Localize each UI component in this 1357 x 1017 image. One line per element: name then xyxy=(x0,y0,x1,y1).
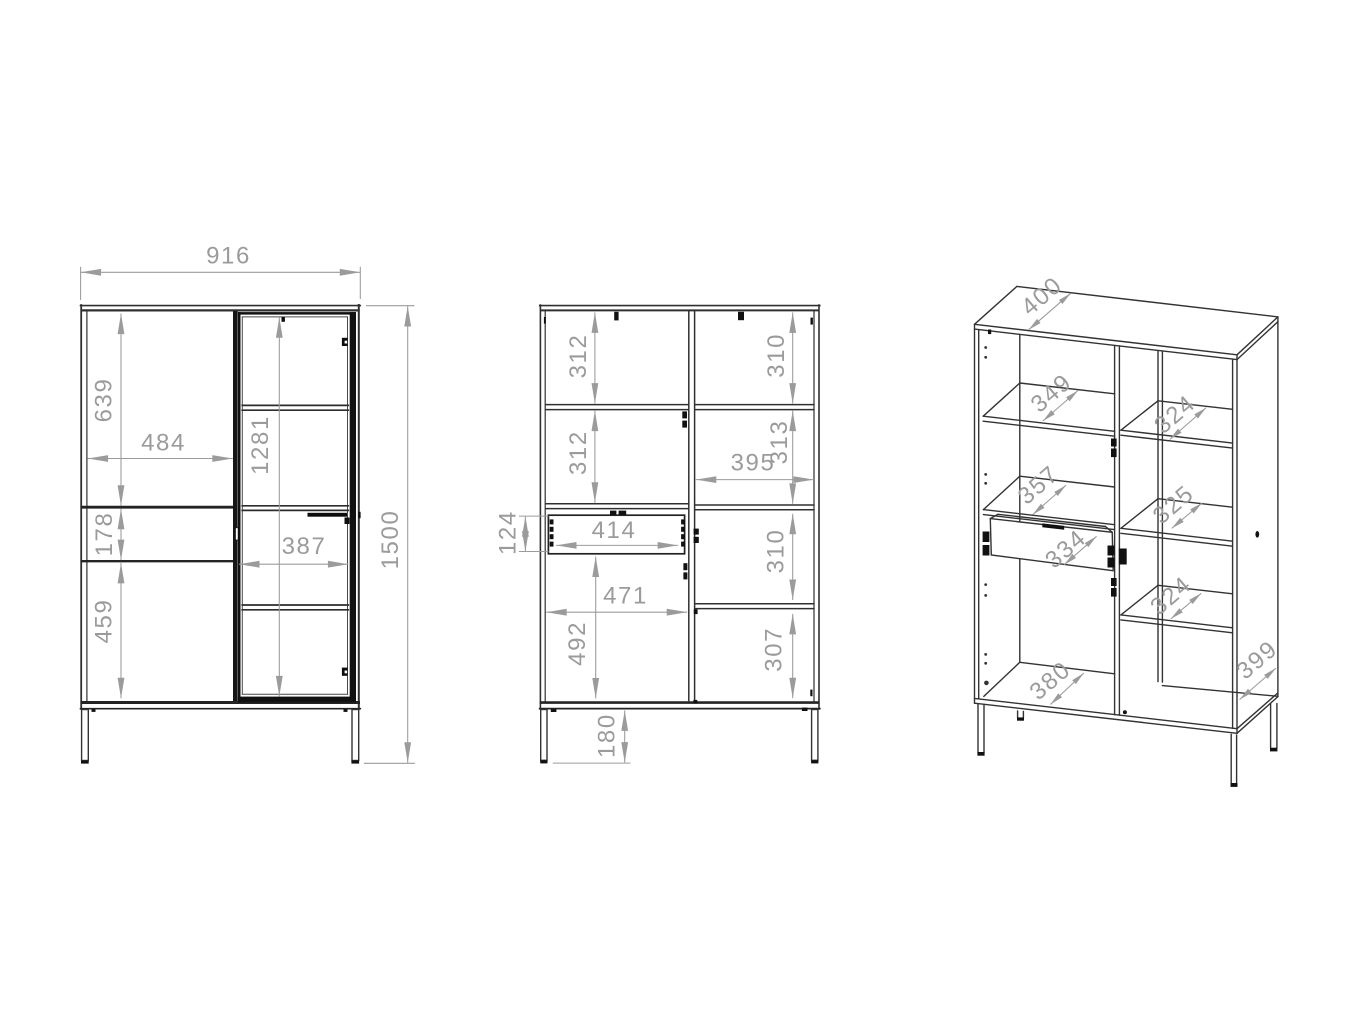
svg-text:1500: 1500 xyxy=(377,510,404,570)
svg-text:484: 484 xyxy=(141,430,186,457)
svg-text:124: 124 xyxy=(494,510,521,555)
svg-text:916: 916 xyxy=(206,243,251,270)
svg-text:178: 178 xyxy=(91,512,118,557)
svg-text:387: 387 xyxy=(282,533,327,560)
svg-text:312: 312 xyxy=(565,334,592,379)
svg-text:307: 307 xyxy=(761,627,788,672)
svg-text:395: 395 xyxy=(731,449,776,476)
svg-text:639: 639 xyxy=(91,378,118,423)
svg-text:492: 492 xyxy=(564,621,591,666)
svg-text:180: 180 xyxy=(594,713,621,758)
svg-text:471: 471 xyxy=(603,583,648,610)
svg-text:312: 312 xyxy=(565,430,592,475)
svg-text:414: 414 xyxy=(592,517,637,544)
svg-text:1281: 1281 xyxy=(247,415,274,475)
svg-text:310: 310 xyxy=(763,333,790,378)
svg-text:459: 459 xyxy=(91,599,118,644)
svg-text:310: 310 xyxy=(763,529,790,574)
